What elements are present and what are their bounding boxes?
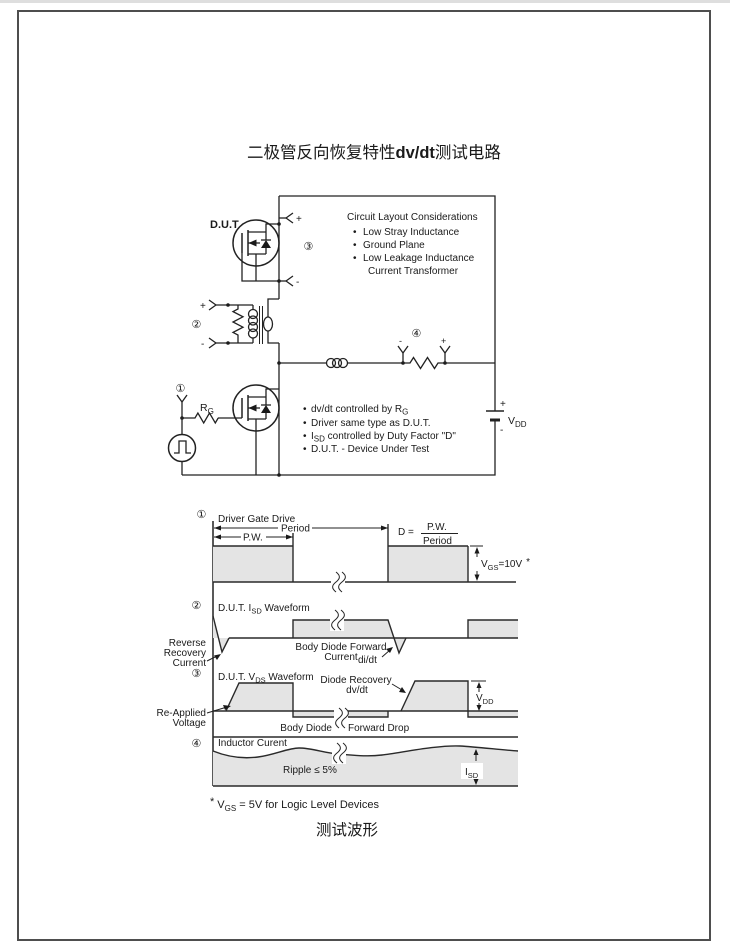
sense-minus-label: -	[399, 336, 402, 346]
svg-text:dv/dt: dv/dt	[346, 685, 368, 696]
battery-minus-label: -	[500, 425, 503, 436]
bullet-icon: •	[353, 240, 357, 251]
dut-probe-plus	[279, 213, 293, 223]
svg-text:Current: Current	[324, 652, 358, 663]
marker-4-circuit: ④	[412, 328, 422, 340]
dut-probe-plus-label: +	[296, 214, 302, 225]
datasheet-page: 二极管反向恢复特性dv/dt测试电路 D.U.T ③	[0, 0, 730, 950]
sense-probe-minus	[398, 346, 408, 353]
marker-1-waveform: ①	[197, 509, 207, 521]
w1-pw-label: P.W.	[243, 533, 263, 544]
w1-period-label: Period	[281, 524, 310, 535]
bullet-icon: •	[353, 227, 357, 238]
layout-item-continuation: Current Transformer	[368, 266, 459, 277]
load-branch: - + ④	[277, 328, 495, 369]
bullet-icon: •	[353, 253, 357, 264]
marker-3-circuit: ③	[304, 241, 314, 253]
bullet-icon: •	[303, 444, 307, 455]
marker-2-circuit: ②	[192, 319, 202, 331]
circuit-notes: • dv/dt controlled by RG • Driver same t…	[303, 404, 456, 455]
vdd-battery: + - VDD	[486, 399, 527, 436]
waveform-isd: ② D.U.T. ISD Waveform Reverse Recovery C…	[164, 600, 518, 669]
bottom-title: 测试波形	[316, 821, 378, 839]
layout-item: Low Stray Inductance	[363, 227, 460, 238]
xfmr-probe-minus	[209, 338, 216, 348]
layout-item: Ground Plane	[363, 240, 425, 251]
current-transformer: ② + -	[192, 299, 280, 350]
waveform-figure: ① Driver Gate Drive Period	[157, 509, 531, 813]
w4-title: Inductor Curent	[218, 738, 287, 749]
svg-text:Voltage: Voltage	[173, 718, 207, 729]
w2-title: D.U.T. ISD Waveform	[218, 603, 310, 616]
duty-lhs: D =	[398, 527, 414, 538]
sense-plus-label: +	[441, 336, 446, 346]
rg-label: RG	[200, 402, 214, 416]
didt-label: di/dt	[358, 655, 377, 666]
waveform-vds: ③ D.U.T. VDS Waveform Re-Applied Voltage…	[157, 668, 518, 734]
xfmr-minus-label: -	[201, 339, 204, 350]
xfmr-primary-loop	[264, 317, 273, 331]
ripple-label: Ripple ≤ 5%	[283, 765, 337, 776]
marker-2-waveform: ②	[192, 600, 202, 612]
layout-title: Circuit Layout Considerations	[347, 212, 478, 223]
bullet-icon: •	[303, 431, 307, 442]
xfmr-plus-label: +	[200, 301, 206, 312]
note-isd: ISD controlled by Duty Factor "D"	[311, 431, 456, 444]
test-circuit: D.U.T ③ + - Circuit Layout Consideration…	[169, 196, 527, 477]
waveform-gate-drive: ① Driver Gate Drive Period	[197, 509, 531, 593]
marker-3-waveform: ③	[192, 668, 202, 680]
figure-canvas: 二极管反向恢复特性dv/dt测试电路 D.U.T ③	[0, 0, 730, 950]
footnote: *VGS = 5V for Logic Level Devices	[210, 796, 379, 813]
dut-mosfet	[233, 220, 281, 283]
note-driver: Driver same type as D.U.T.	[311, 418, 430, 429]
main-title: 二极管反向恢复特性dv/dt测试电路	[247, 143, 501, 162]
dut-label: D.U.T	[210, 219, 239, 231]
dut-probe-minus-label: -	[296, 277, 299, 288]
vdd-label: VDD	[508, 415, 527, 429]
note-dut: D.U.T. - Device Under Test	[311, 444, 429, 455]
driver-mosfet	[218, 385, 279, 475]
w3-body-right: Forward Drop	[348, 723, 410, 734]
layout-considerations: Circuit Layout Considerations • Low Stra…	[347, 212, 478, 277]
waveform-inductor: ④ Inductor Curent Ripple ≤ 5% ISD	[192, 737, 519, 786]
bullet-icon: •	[303, 404, 307, 415]
pulse-icon	[174, 441, 191, 453]
burden-resistor	[233, 305, 243, 343]
pulse-generator	[169, 435, 196, 462]
sense-probe-plus	[440, 346, 450, 353]
battery-plus-label: +	[500, 399, 506, 410]
bullet-icon: •	[303, 418, 307, 429]
gate-probe	[177, 395, 187, 402]
marker-4-waveform: ④	[192, 738, 202, 750]
layout-item: Low Leakage Inductance	[363, 253, 475, 264]
marker-1-circuit: ①	[176, 383, 186, 395]
duty-numerator: P.W.	[427, 522, 447, 533]
note-dvdt: dv/dt controlled by RG	[311, 404, 408, 417]
vgs-annotation: VGS=10V*	[481, 557, 530, 572]
w3-body-left: Body Diode	[280, 723, 332, 734]
sense-resistor	[403, 358, 445, 369]
duty-denominator: Period	[423, 536, 452, 547]
dut-probe-minus	[279, 276, 293, 286]
xfmr-probe-plus	[209, 300, 216, 310]
